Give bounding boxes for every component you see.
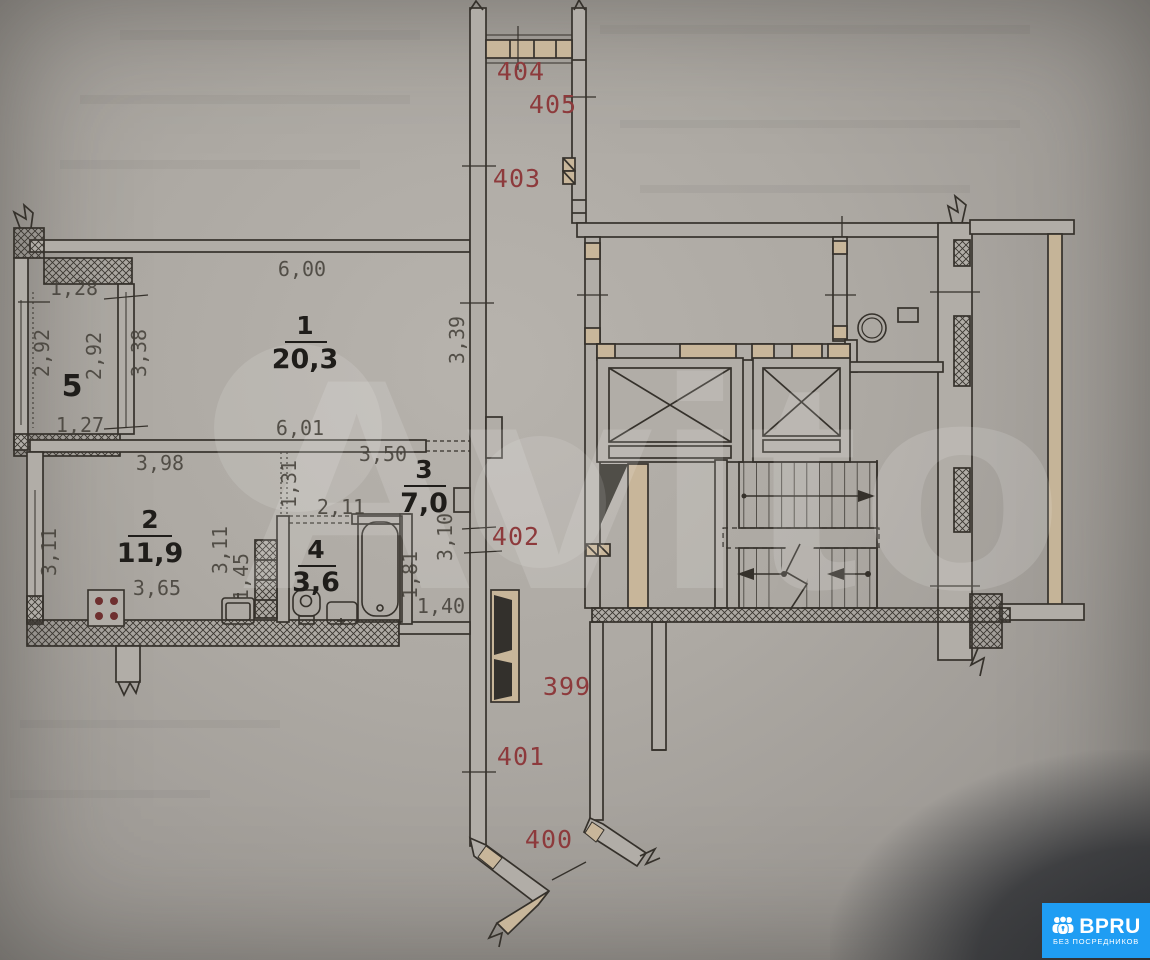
dim-2-92-b: 2,92	[82, 332, 106, 380]
corridor-bottom-diagonal-right	[584, 622, 660, 866]
dim-3-38: 3,38	[127, 329, 151, 377]
wall-break-tl	[14, 205, 33, 228]
dim-3-11-a: 3,11	[37, 528, 61, 576]
apt-402-label: 402	[492, 522, 540, 551]
watermark-text: Avito	[235, 316, 1065, 652]
room-2-number: 2	[141, 505, 158, 534]
apt-404-label: 404	[497, 57, 545, 86]
room-2-area: 11,9	[117, 538, 184, 569]
apt-399-label: 399	[543, 672, 591, 701]
stove-icon	[88, 590, 124, 626]
core-top-wall	[577, 223, 967, 237]
dim-1-28: 1,28	[50, 276, 98, 300]
bpru-logo: BPRU БЕЗ ПОСРЕДНИКОВ	[1042, 903, 1150, 958]
dim-3-39: 3,39	[445, 316, 469, 364]
room-4-area: 3,6	[292, 567, 340, 598]
dim-1-27: 1,27	[56, 413, 104, 437]
dim-1-40: 1,40	[417, 594, 465, 618]
dim-1-45: 1,45	[229, 553, 253, 601]
people-icon	[1051, 915, 1075, 937]
apt-403-label: 403	[493, 164, 541, 193]
core-beam-topright	[970, 220, 1074, 234]
logo-tagline: БЕЗ ПОСРЕДНИКОВ	[1053, 938, 1139, 946]
room-2-label: 2 11,9	[117, 505, 184, 569]
room-4-number: 4	[307, 535, 324, 564]
room-3-area: 7,0	[400, 488, 448, 519]
corridor-lintel	[486, 40, 572, 58]
dim-3-50: 3,50	[359, 442, 407, 466]
wall-stub-below	[116, 646, 140, 682]
vent-box-small	[563, 158, 575, 184]
room-5-number: 5	[62, 369, 83, 404]
dim-6-00: 6,00	[278, 257, 326, 281]
apt-400-label: 400	[525, 825, 573, 854]
dim-3-65: 3,65	[133, 576, 181, 600]
dim-1-81: 1,81	[398, 551, 422, 599]
apt-405-label: 405	[529, 90, 577, 119]
apt-401-label: 401	[497, 742, 545, 771]
dim-6-01: 6,01	[276, 416, 324, 440]
floor-plan-drawing: Avito 404 405 403 402 399 401 400 1,28 2…	[0, 0, 1150, 960]
wall-top	[30, 240, 470, 252]
dim-3-10: 3,10	[433, 513, 457, 561]
logo-brand-text: BPRU	[1079, 916, 1141, 937]
dim-2-11: 2,11	[317, 495, 365, 519]
wall-corner-hatch-tl	[14, 228, 44, 258]
dim-3-98: 3,98	[136, 451, 184, 475]
floor-plan-photo: Avito 404 405 403 402 399 401 400 1,28 2…	[0, 0, 1150, 960]
dim-2-92-a: 2,92	[30, 329, 54, 377]
room-1-area: 20,3	[272, 344, 339, 375]
room-1-number: 1	[296, 311, 313, 340]
dim-1-31: 1,31	[277, 460, 301, 508]
corridor-bottom-diagonal-left	[470, 838, 586, 947]
room-3-number: 3	[415, 455, 432, 484]
avito-watermark: Avito	[214, 316, 1065, 652]
core-wall-break-top	[948, 196, 966, 223]
